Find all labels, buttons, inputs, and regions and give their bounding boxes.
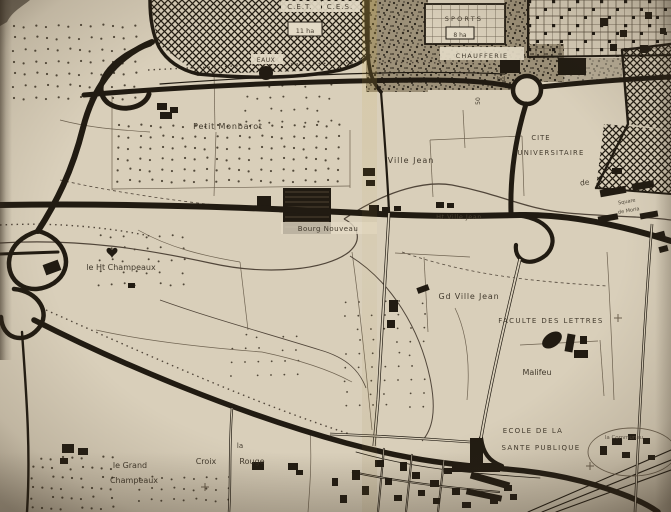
map-building [160, 112, 172, 119]
map-building [610, 44, 617, 51]
map-building [62, 444, 74, 453]
map-building [580, 336, 587, 344]
map-building [157, 103, 167, 110]
map-building [558, 58, 586, 75]
map-label-faculte: FACULTE DES LETTRES [498, 317, 603, 325]
eaux-reservoir-dot [259, 66, 273, 80]
map-label-communaute: la Communau [605, 435, 643, 441]
map-label-universitaire: UNIVERSITAIRE [518, 149, 585, 157]
map-label-50: 50 [475, 97, 482, 105]
map-building [620, 30, 627, 37]
map-label-8ha: 8 ha [453, 32, 467, 39]
map-label-de: de [579, 177, 590, 187]
map-building [382, 207, 390, 213]
map-building [394, 206, 401, 211]
scanned-map-photo: Scanned photograph of a 1960s French pla… [0, 0, 671, 512]
map-label-ht-ville-jean: Ht Ville Jean [436, 213, 482, 221]
map-label-gd-ville-jean: Gd Ville Jean [439, 292, 500, 301]
map-building [128, 283, 135, 288]
map-label-bd: bd [497, 75, 505, 83]
map-label-ht-champeaux: le Ht Champeaux [86, 263, 156, 272]
building-block [257, 196, 271, 206]
map-label-cite: CITE [531, 134, 550, 142]
map-building [574, 350, 588, 358]
map-building [500, 60, 520, 73]
map-label-ecole-2: SANTE PUBLIQUE [502, 444, 581, 452]
paper-fold-crease [362, 0, 377, 512]
map-label-11ha: 11 ha [296, 27, 314, 35]
road-roundabout [513, 76, 541, 104]
photo-right-edge-shadow [655, 0, 671, 512]
map-building [645, 12, 652, 19]
area-stipple-3 [504, 0, 530, 46]
map-label-ecole-1: ECOLE DE LA [503, 427, 564, 435]
map-label-chaufferie: CHAUFFERIE [456, 52, 509, 60]
map-building [436, 202, 444, 208]
map-building [612, 168, 622, 174]
map-label-petit-monbarot: Petit Monbarot [193, 122, 263, 131]
map-image: C.E.T.C.E.S.11 haEAUXSPORTS8 haCHAUFFERI… [0, 0, 671, 512]
map-building [389, 300, 398, 312]
map-label-ces: C.E.S. [327, 3, 353, 11]
map-label-cet: C.E.T. [287, 3, 312, 11]
map-label-sports: SPORTS [445, 15, 484, 23]
map-label-malifeu: Malifeu [522, 368, 551, 377]
photo-bottom-shadow [0, 452, 671, 512]
photo-left-edge-shadow [0, 0, 12, 360]
map-label-bourg-nouveau: Bourg Nouveau [298, 225, 359, 233]
map-building [387, 320, 395, 328]
map-building [640, 45, 648, 53]
map-building [447, 203, 454, 208]
map-building [600, 18, 608, 26]
map-building [643, 438, 650, 444]
map-label-ville-jean: Ville Jean [388, 156, 435, 165]
map-label-eaux: EAUX [257, 57, 275, 64]
map-label-la: la [237, 442, 243, 450]
